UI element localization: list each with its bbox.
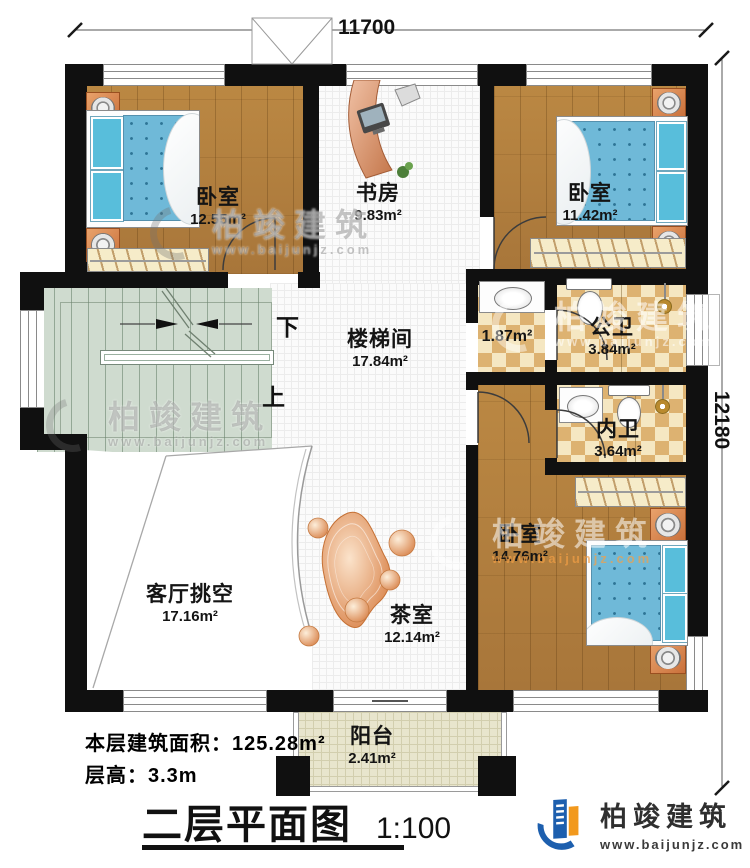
window-bottom-bedroom — [513, 690, 659, 712]
brand-url: www.baijunjz.com — [600, 837, 744, 852]
nightstand — [650, 508, 686, 542]
nightstand — [650, 642, 686, 674]
wall-under-bed1-b — [298, 272, 320, 288]
wall-right — [686, 64, 708, 712]
wall-lobby-pubbath-b — [545, 360, 557, 410]
nightstand — [652, 88, 686, 118]
wall-study-bed2 — [480, 84, 494, 217]
shower-head — [655, 399, 670, 414]
window-stair-bay — [20, 310, 44, 408]
wall-hall-bed3 — [466, 445, 478, 692]
bed-bottom — [586, 540, 688, 646]
window-right-bath — [686, 294, 708, 366]
balcony-column-right — [478, 756, 516, 796]
floor-height-note: 层高：3.3m — [85, 759, 198, 788]
brand-logo: 柏竣建筑 www.baijunjz.com — [530, 792, 744, 854]
room-label-bedroom-top-right: 卧室 11.42m² — [538, 182, 642, 224]
stair-down-label: 下 — [276, 308, 299, 342]
balcony-door-handle — [372, 700, 408, 702]
wall-hall-lobby-a — [466, 285, 478, 323]
toilet-tank — [566, 278, 612, 290]
room-label-bath-lobby: 1.87m² — [472, 328, 542, 347]
brand-name: 柏竣建筑 — [600, 795, 744, 834]
window-sill-right — [708, 294, 720, 366]
study-desk — [340, 80, 424, 188]
room-label-stairwell: 楼梯间 17.84m² — [326, 328, 434, 370]
brand-logo-icon — [530, 792, 592, 854]
sink — [479, 281, 545, 313]
stair-up-label: 上 — [262, 378, 285, 412]
laptop — [395, 84, 420, 106]
wall-left-lower — [65, 434, 87, 712]
floor-plan-sheet: 卧室 12.55m² 书房 9.83m² 卧室 11.42m² 楼梯间 17.8… — [0, 0, 750, 868]
room-label-bedroom-bottom: 卧室 14.76m² — [468, 523, 572, 565]
stair-handrail — [100, 350, 274, 365]
room-label-living-void: 客厅挑空 17.16m² — [132, 583, 248, 625]
dimension-top-value: 11700 — [338, 16, 395, 40]
sheet-title: 二层平面图 1:100 — [142, 792, 451, 850]
window-top-bedroom-left — [103, 64, 225, 86]
wall-lobby-pubbath-a — [545, 285, 557, 310]
sheet-scale: 1:100 — [376, 812, 451, 846]
wall-bath-row — [466, 372, 708, 385]
room-label-ensuite-bath: 内卫 3.64m² — [574, 418, 662, 460]
wall-under-bed1-a — [87, 272, 228, 288]
stair-well-outline — [60, 302, 272, 438]
wall-left-upper — [65, 64, 87, 286]
room-label-public-bath: 公卫 3.84m² — [568, 316, 656, 358]
window-top-bedroom-right — [526, 64, 652, 86]
window-bottom-living-void — [123, 690, 267, 712]
room-label-bedroom-top-left: 卧室 12.55m² — [163, 186, 273, 228]
canopy-marker — [252, 18, 332, 64]
balcony-column-left — [276, 756, 310, 796]
wall-ensuite-bed3 — [545, 462, 708, 475]
wardrobe — [575, 477, 686, 507]
dimension-right-value: 12180 — [709, 389, 733, 451]
floor-area-note: 本层建筑面积：125.28m² — [85, 727, 326, 756]
toilet-tank — [608, 385, 650, 396]
room-label-balcony: 阳台 2.41m² — [318, 725, 426, 767]
room-label-study: 书房 9.83m² — [328, 182, 428, 224]
sheet-title-text: 二层平面图 — [142, 792, 352, 850]
shower-head — [657, 299, 672, 314]
wardrobe — [530, 238, 686, 268]
wardrobe — [87, 248, 209, 272]
room-label-tea-room: 茶室 12.14m² — [358, 604, 466, 646]
title-underline — [142, 845, 404, 850]
wall-bed1-study — [303, 84, 319, 288]
